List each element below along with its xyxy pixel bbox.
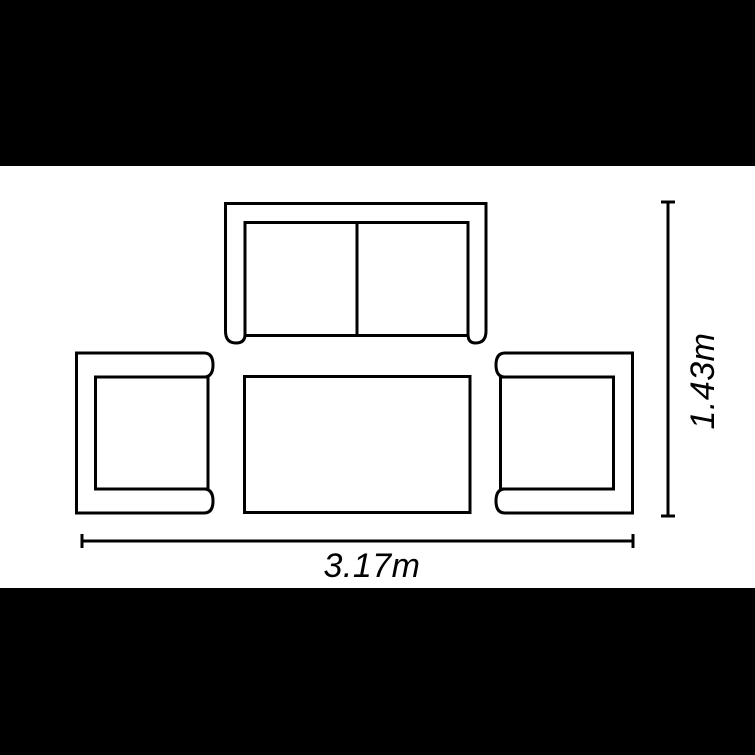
left-armchair-icon [77,353,214,513]
right-armchair-seat [501,377,614,489]
height-dimension-label: 1.43m [684,333,722,430]
width-dimension-label: 3.17m [324,547,421,585]
coffee-table-icon [245,377,471,513]
furniture-dimension-diagram: 1.43m 3.17m [0,0,755,755]
left-armchair-seat [96,377,209,489]
sofa-icon [226,204,487,344]
diagram-canvas: 1.43m 3.17m [0,0,755,755]
right-armchair-icon [496,353,633,513]
